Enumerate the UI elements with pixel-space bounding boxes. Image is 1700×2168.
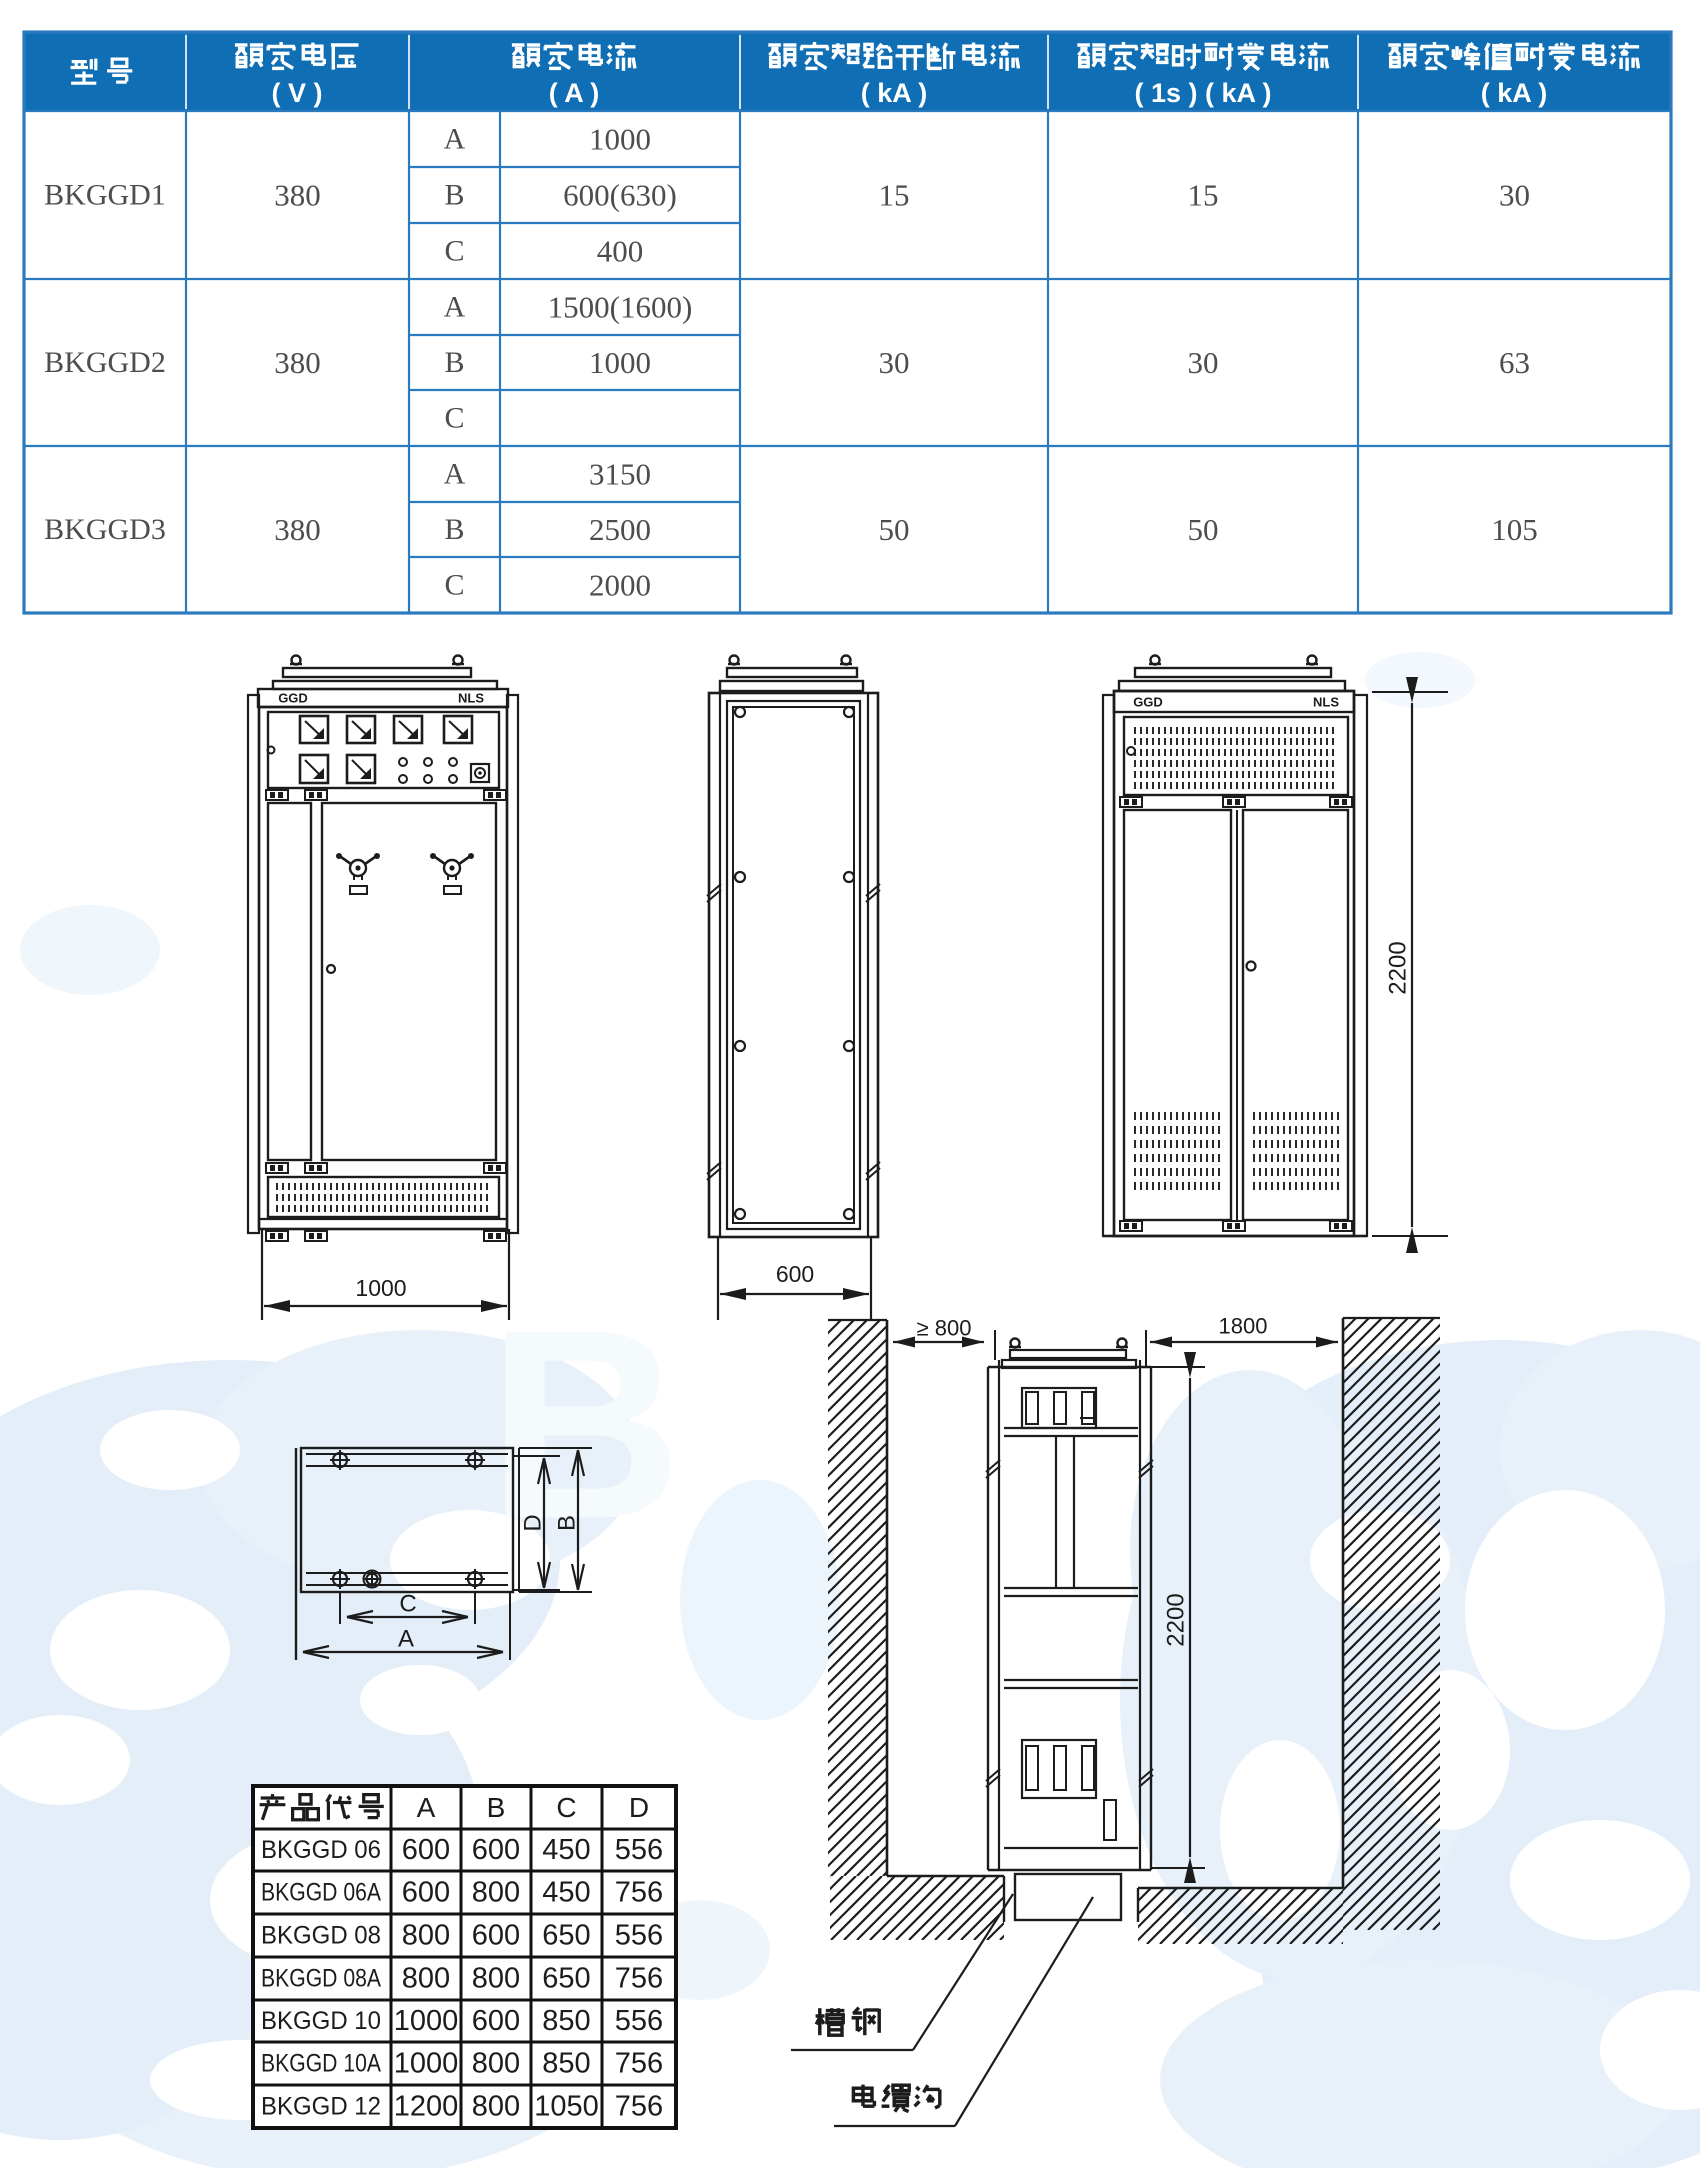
svg-text:2000: 2000 (589, 568, 651, 603)
svg-text:BKGGD 12: BKGGD 12 (261, 2093, 381, 2121)
svg-text:BKGGD2: BKGGD2 (44, 346, 166, 379)
svg-text:556: 556 (615, 1920, 663, 1952)
svg-text:GGD: GGD (278, 691, 308, 706)
svg-text:30: 30 (1188, 345, 1219, 380)
svg-text:1000: 1000 (589, 345, 651, 380)
svg-text:( kA ): ( kA ) (861, 78, 928, 108)
svg-text:400: 400 (597, 234, 644, 269)
svg-text:B: B (444, 513, 464, 546)
svg-text:( A ): ( A ) (549, 78, 599, 108)
svg-text:380: 380 (274, 178, 321, 213)
svg-text:C: C (399, 1591, 416, 1618)
svg-text:50: 50 (1188, 512, 1219, 547)
svg-text:800: 800 (472, 2048, 520, 2080)
svg-text:1000: 1000 (394, 2048, 459, 2080)
svg-text:105: 105 (1491, 512, 1538, 547)
svg-text:A: A (398, 1626, 414, 1653)
svg-text:556: 556 (615, 1834, 663, 1866)
svg-text:600: 600 (402, 1877, 450, 1909)
svg-text:450: 450 (542, 1834, 590, 1866)
svg-text:D: D (629, 1792, 649, 1823)
svg-text:600: 600 (776, 1261, 814, 1287)
svg-text:800: 800 (402, 1920, 450, 1952)
svg-text:1000: 1000 (394, 2005, 459, 2037)
svg-text:BKGGD3: BKGGD3 (44, 513, 166, 546)
svg-text:15: 15 (1188, 178, 1219, 213)
svg-text:556: 556 (615, 2005, 663, 2037)
svg-text:1800: 1800 (1219, 1314, 1268, 1339)
svg-text:1500(1600): 1500(1600) (548, 290, 693, 325)
svg-text:800: 800 (472, 2091, 520, 2123)
svg-text:BKGGD 10: BKGGD 10 (261, 2007, 381, 2035)
svg-text:C: C (444, 569, 464, 602)
svg-text:30: 30 (879, 345, 910, 380)
svg-text:B: B (554, 1515, 581, 1531)
svg-text:63: 63 (1499, 345, 1530, 380)
svg-text:A: A (417, 1792, 436, 1823)
svg-text:50: 50 (879, 512, 910, 547)
svg-text:B: B (444, 179, 464, 212)
svg-text:1000: 1000 (589, 122, 651, 157)
svg-text:( V ): ( V ) (272, 78, 323, 108)
svg-text:756: 756 (615, 1877, 663, 1909)
svg-text:BKGGD 10A: BKGGD 10A (261, 2050, 381, 2078)
svg-text:B: B (488, 1275, 683, 1576)
svg-text:BKGGD 08A: BKGGD 08A (261, 1965, 381, 1993)
svg-text:BKGGD 08: BKGGD 08 (261, 1922, 381, 1950)
svg-text:( 1s ) ( kA ): ( 1s ) ( kA ) (1134, 78, 1271, 108)
svg-text:600: 600 (402, 1834, 450, 1866)
svg-text:BKGGD1: BKGGD1 (44, 179, 166, 212)
svg-text:B: B (487, 1792, 506, 1823)
svg-text:BKGGD 06A: BKGGD 06A (261, 1879, 381, 1907)
svg-text:A: A (444, 291, 466, 324)
svg-text:2500: 2500 (589, 512, 651, 547)
svg-text:756: 756 (615, 2048, 663, 2080)
svg-text:15: 15 (879, 178, 910, 213)
svg-text:600: 600 (472, 1920, 520, 1952)
svg-text:650: 650 (542, 1920, 590, 1952)
svg-text:1000: 1000 (355, 1275, 406, 1301)
svg-text:BKGGD 06: BKGGD 06 (261, 1836, 381, 1864)
svg-text:NLS: NLS (458, 691, 484, 706)
svg-text:C: C (556, 1792, 576, 1823)
svg-text:380: 380 (274, 345, 321, 380)
svg-text:800: 800 (472, 1963, 520, 1995)
svg-text:NLS: NLS (1313, 695, 1339, 710)
svg-text:1050: 1050 (534, 2091, 599, 2123)
svg-text:756: 756 (615, 1963, 663, 1995)
svg-text:( kA ): ( kA ) (1481, 78, 1548, 108)
svg-text:850: 850 (542, 2048, 590, 2080)
svg-text:800: 800 (472, 1877, 520, 1909)
svg-text:1200: 1200 (394, 2091, 459, 2123)
svg-text:3150: 3150 (589, 457, 651, 492)
svg-text:C: C (444, 235, 464, 268)
svg-text:600: 600 (472, 2005, 520, 2037)
svg-text:2200: 2200 (1163, 1593, 1190, 1646)
svg-text:2200: 2200 (1385, 941, 1412, 994)
svg-text:450: 450 (542, 1877, 590, 1909)
svg-text:D: D (520, 1514, 547, 1531)
svg-text:756: 756 (615, 2091, 663, 2123)
svg-text:800: 800 (402, 1963, 450, 1995)
svg-text:≥ 800: ≥ 800 (917, 1316, 972, 1341)
svg-text:C: C (444, 402, 464, 435)
svg-text:380: 380 (274, 512, 321, 547)
svg-text:B: B (444, 346, 464, 379)
svg-text:600(630): 600(630) (563, 178, 677, 213)
svg-text:A: A (444, 123, 466, 156)
svg-text:850: 850 (542, 2005, 590, 2037)
svg-text:GGD: GGD (1133, 695, 1163, 710)
svg-text:A: A (444, 458, 466, 491)
svg-text:650: 650 (542, 1963, 590, 1995)
svg-text:600: 600 (472, 1834, 520, 1866)
svg-text:30: 30 (1499, 178, 1530, 213)
